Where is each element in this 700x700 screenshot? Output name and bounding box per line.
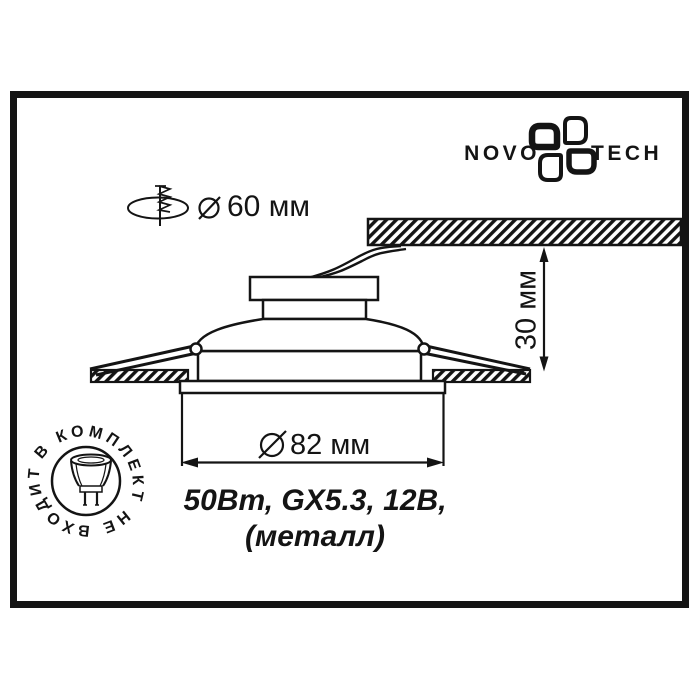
drill-cutout-icon bbox=[128, 186, 188, 226]
trim-flange bbox=[180, 381, 445, 393]
trim-diameter-label: 82 мм bbox=[290, 431, 370, 460]
spec-text: 50Вт, GX5.3, 12В, (металл) bbox=[0, 483, 630, 555]
fixture-housing bbox=[198, 351, 421, 381]
novotech-pinwheel-icon bbox=[532, 118, 594, 180]
spec-line-1: 50Вт, GX5.3, 12В, bbox=[0, 483, 630, 519]
fixture-neck bbox=[263, 300, 366, 319]
diameter-icon-82 bbox=[259, 431, 286, 458]
spring-pivot-right bbox=[419, 344, 430, 355]
logo-text-tech: TECH bbox=[591, 142, 662, 166]
terminal-box bbox=[250, 277, 378, 300]
cutout-diameter-label: 60 мм bbox=[227, 192, 310, 222]
spring-pivot-left bbox=[191, 344, 202, 355]
power-wire bbox=[308, 246, 406, 278]
logo-text-novo: NOVO bbox=[440, 142, 540, 166]
fixture-bell bbox=[195, 319, 425, 351]
spec-line-2: (металл) bbox=[0, 519, 630, 555]
fixture-body bbox=[195, 277, 425, 381]
diameter-icon-60 bbox=[199, 197, 220, 219]
depth-dimension-label: 30 мм bbox=[513, 270, 542, 350]
ceiling-slab bbox=[368, 219, 681, 245]
technical-drawing: В КОМПЛЕКТ НЕ ВХОДИТ bbox=[0, 0, 700, 700]
